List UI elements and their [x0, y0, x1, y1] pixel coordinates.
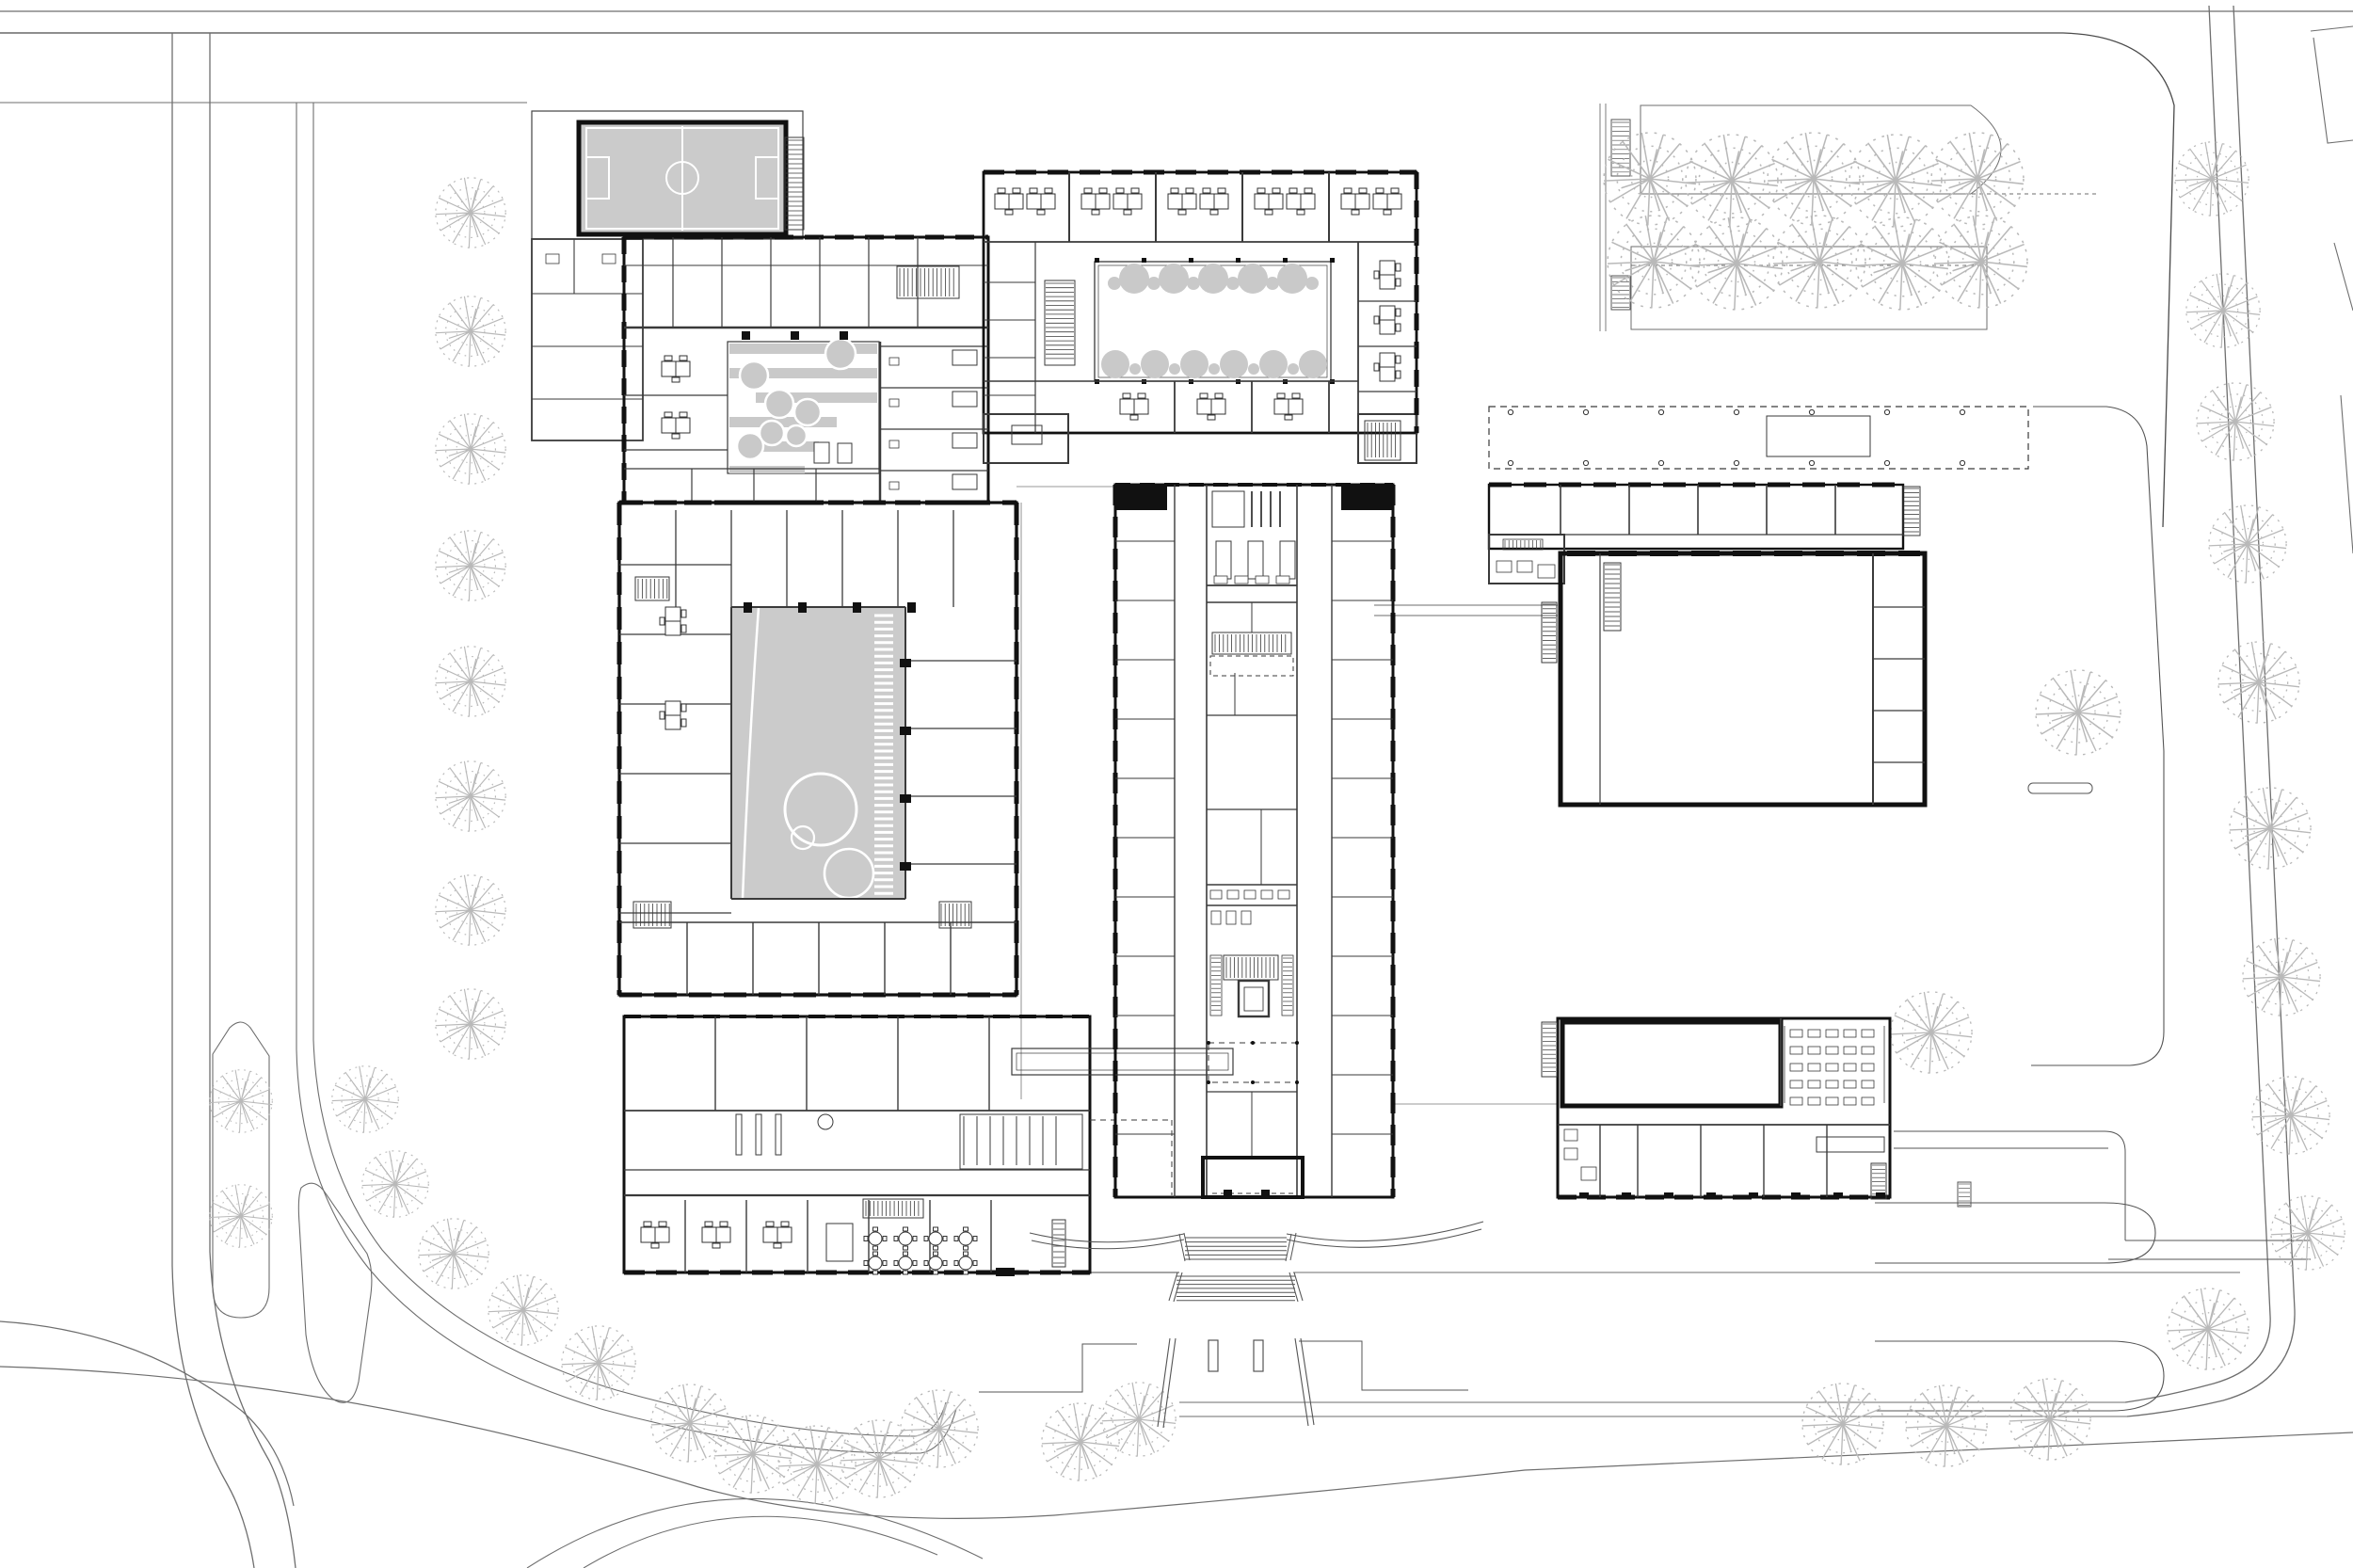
terrace-d-lower — [1875, 1341, 2164, 1411]
desk-symbol — [1081, 188, 1110, 215]
east-hall-building — [1542, 553, 1925, 805]
north-classroom-wing — [984, 172, 1417, 463]
tree-icon — [562, 1326, 635, 1400]
tree-icon — [1906, 1385, 1987, 1466]
door-post — [1261, 1190, 1270, 1196]
tree-icon — [1802, 1384, 1883, 1464]
library-counter — [1212, 491, 1244, 527]
wall-pier — [840, 331, 848, 340]
cot — [952, 474, 977, 489]
wall-pier — [900, 862, 911, 871]
lecture-seat-row — [1790, 1030, 1802, 1037]
courtyard-tree-dot — [1266, 277, 1279, 290]
tree-icon — [1690, 217, 1783, 310]
lecture-seat-row — [1862, 1064, 1874, 1071]
courtyard-tree-dot — [1129, 363, 1141, 375]
column-marker — [1189, 258, 1193, 263]
locker — [1210, 890, 1222, 899]
wall-pier — [742, 331, 750, 340]
pergola-post — [1583, 409, 1588, 414]
shrub — [765, 390, 793, 418]
bench-slot — [2028, 783, 2092, 793]
tree-icon — [419, 1219, 488, 1288]
wall-pier — [1706, 1192, 1716, 1198]
desk-symbol — [660, 701, 686, 729]
fixture — [602, 254, 616, 264]
schoolyard-east-edge — [2031, 407, 2164, 1065]
crib — [889, 358, 899, 365]
courtyard-tree-dot — [1169, 363, 1180, 375]
roundabout-arc-outer — [527, 1498, 983, 1568]
desk-symbol — [995, 188, 1023, 215]
skylight-dot — [1251, 1041, 1255, 1045]
courtyard-tree-dot — [1238, 264, 1268, 294]
desk-symbol — [1373, 188, 1401, 215]
canopy-inner — [1016, 1053, 1228, 1070]
tree-icon — [1891, 992, 1972, 1073]
fixture — [1581, 1167, 1596, 1180]
elevator-cab — [1244, 987, 1263, 1011]
courtyard-tree-dot — [1147, 277, 1160, 290]
tree-icon — [2168, 1288, 2249, 1369]
column-marker — [1283, 258, 1288, 263]
lecture-seat-row — [1844, 1030, 1856, 1037]
landscape-trees — [210, 133, 2345, 1503]
street-east-outer — [2125, 6, 2270, 1402]
wall-pier — [900, 659, 911, 667]
crib — [889, 482, 899, 489]
desk-symbol — [702, 1222, 730, 1248]
void-dashed — [1210, 656, 1293, 676]
fixture — [1538, 565, 1555, 578]
wall-pier — [853, 602, 861, 613]
skylight-dot — [1207, 1080, 1210, 1084]
lecture-seat-row — [1844, 1097, 1856, 1105]
wc — [1564, 1129, 1577, 1141]
lecture-seat-row — [1808, 1097, 1820, 1105]
reading-table — [1216, 541, 1231, 579]
lower-stair-cheek — [1174, 1272, 1182, 1302]
annex-sw — [984, 414, 1068, 463]
pergola-post — [1508, 409, 1513, 414]
splayed-wall — [1163, 1338, 1176, 1428]
lecture-seat-row — [1808, 1064, 1820, 1071]
wall-pier — [907, 602, 916, 613]
tree-icon — [436, 989, 505, 1059]
east-classroom-bar — [1489, 407, 2028, 584]
shrub — [740, 361, 768, 390]
tree-icon — [210, 1185, 273, 1248]
tree-icon — [1608, 216, 1700, 308]
desk-symbol — [1374, 261, 1401, 289]
lecture-seat-row — [1790, 1064, 1802, 1071]
lecture-seat-row — [1844, 1047, 1856, 1054]
desk-symbol — [1255, 188, 1283, 215]
wall-pier — [1833, 1192, 1843, 1198]
crib — [889, 440, 899, 448]
main-school-block — [619, 503, 1016, 995]
wall-pier — [1791, 1192, 1801, 1198]
lecture-seat-row — [1826, 1097, 1838, 1105]
plan-layers — [0, 6, 2353, 1568]
wide-stair — [1212, 632, 1291, 654]
lecture-seat-row — [1826, 1047, 1838, 1054]
corner-core — [1115, 485, 1167, 510]
serving-counter — [1052, 1220, 1065, 1267]
desk-symbol — [1341, 188, 1369, 215]
courtyard-tree-dot — [1159, 264, 1189, 294]
lecture-seat-row — [1844, 1080, 1856, 1088]
tree-icon — [436, 414, 505, 484]
wall-pier — [900, 794, 911, 803]
courtyard-tree-dot — [1119, 264, 1149, 294]
upper-stair-cheek — [1179, 1234, 1185, 1261]
round-table-symbol — [894, 1227, 917, 1250]
wall-pier — [900, 727, 911, 735]
wc-stall — [1241, 911, 1251, 924]
sandbox — [838, 443, 852, 463]
pergola-post — [1508, 460, 1513, 465]
canopy — [1012, 1048, 1233, 1075]
shelving — [756, 1114, 761, 1155]
tree-icon — [488, 1275, 558, 1345]
shelving — [736, 1114, 742, 1155]
desk-symbol — [641, 1222, 669, 1248]
corner-core — [1341, 485, 1393, 510]
locker — [1278, 890, 1289, 899]
south-east-building — [1542, 1018, 1890, 1199]
parcel-line-e1 — [2334, 243, 2353, 311]
terrace-d-upper — [1875, 1203, 2155, 1263]
cot — [952, 433, 977, 448]
side-stair-east — [1282, 955, 1293, 1016]
bar-outline — [1489, 485, 1903, 549]
lecture-seat-row — [1826, 1080, 1838, 1088]
wall-pier — [1664, 1192, 1673, 1198]
desk-symbol — [1200, 188, 1228, 215]
curved-wing-wall — [1287, 1222, 1483, 1241]
courtyard-tree-dot — [1180, 350, 1209, 378]
counter-unit — [1256, 576, 1269, 584]
lecture-seat-row — [1808, 1080, 1820, 1088]
wall-pier — [1749, 1192, 1758, 1198]
street-west-outer — [172, 33, 254, 1568]
tree-icon — [1935, 216, 2027, 308]
central-slab-building — [1115, 485, 1393, 1197]
wc — [1517, 561, 1532, 572]
gym-hall — [1562, 1022, 1781, 1106]
desk-symbol — [1113, 188, 1142, 215]
courtyard-tree-dot — [1299, 350, 1327, 378]
wc-stall — [1211, 911, 1221, 924]
courtyard-tree-dot — [1305, 277, 1319, 290]
locker — [1244, 890, 1256, 899]
desk-symbol — [1274, 393, 1303, 420]
floor-plan — [0, 0, 2353, 1568]
fixture — [546, 254, 559, 264]
pergola-post — [1734, 409, 1738, 414]
wall-pier — [1876, 1192, 1885, 1198]
lower-stair-cheek — [1289, 1272, 1298, 1302]
entrance-plaza — [979, 1222, 1483, 1428]
lower-stair-cheek — [1294, 1272, 1303, 1301]
tree-icon — [332, 1066, 398, 1132]
tree-icon — [436, 761, 505, 831]
desk-symbol — [1374, 306, 1401, 334]
tree-icon — [1931, 133, 2024, 225]
tree-icon — [436, 647, 505, 716]
desk-symbol — [662, 412, 690, 439]
wall-pier — [744, 602, 752, 613]
door-post — [1224, 1190, 1232, 1196]
splayed-wall — [1158, 1338, 1170, 1427]
shrub — [786, 425, 807, 446]
tree-icon — [2252, 1077, 2329, 1154]
reading-table — [1280, 541, 1295, 579]
skylight-dot — [1251, 1080, 1255, 1084]
skylight-dot — [1207, 1041, 1210, 1045]
courtyard-tree-dot — [1141, 350, 1169, 378]
pergola-post — [1809, 409, 1814, 414]
stair-se — [939, 902, 971, 928]
courtyard-tree-dot — [1209, 363, 1220, 375]
lower-stair-cheek — [1169, 1272, 1177, 1301]
kerb-top — [0, 33, 2174, 527]
round-table-symbol — [924, 1227, 947, 1250]
locker — [1227, 890, 1239, 899]
wc-stall — [1226, 911, 1236, 924]
kitchen-border — [960, 1114, 1082, 1169]
shrub — [825, 339, 856, 369]
lecture-seat-row — [1862, 1030, 1874, 1037]
exterior-stair — [1542, 1022, 1557, 1077]
desk-symbol — [1168, 188, 1196, 215]
kindergarten-block — [624, 237, 988, 503]
courtyard-tree-dot — [1248, 363, 1259, 375]
tree-icon — [2036, 670, 2121, 755]
street-east-inner — [2127, 6, 2295, 1416]
column-marker — [1330, 258, 1335, 263]
small-round-table — [818, 1114, 833, 1129]
planting-strip-lower — [1631, 247, 1987, 329]
plateau-edge-east — [1299, 1341, 1468, 1390]
slab-outline — [1115, 485, 1393, 1197]
lecture-seat-row — [1826, 1030, 1838, 1037]
lecture-seat-row — [1826, 1064, 1838, 1071]
wc — [1564, 1148, 1577, 1160]
pergola-post — [1583, 460, 1588, 465]
curved-wing-wall — [1032, 1240, 1184, 1249]
reading-table — [1248, 541, 1263, 579]
roundabout-arc-inner — [584, 1516, 937, 1568]
tree-icon — [2175, 142, 2249, 216]
cot — [952, 350, 977, 365]
hall-outline — [1561, 553, 1925, 805]
hall-stair — [1604, 563, 1621, 631]
annex — [1489, 535, 1564, 584]
courtyard-tree-dot — [1220, 350, 1248, 378]
street-west-inner — [210, 33, 296, 1568]
tree-icon — [2218, 642, 2299, 723]
courtyard-tree-dot — [1187, 277, 1200, 290]
tree-icon — [651, 1384, 728, 1462]
tree-icon — [1773, 216, 1865, 308]
lecture-seat-row — [1790, 1097, 1802, 1105]
pergola-post — [1809, 460, 1814, 465]
upper-stair-cheek — [1290, 1233, 1296, 1260]
main-entrance-vestibule — [1203, 1158, 1303, 1197]
tree-icon — [436, 178, 505, 248]
round-table-symbol — [864, 1227, 887, 1250]
splayed-wall — [1301, 1338, 1314, 1425]
tree-icon — [2197, 383, 2274, 460]
lecture-seat-row — [1790, 1080, 1802, 1088]
skylight-dot — [1295, 1041, 1299, 1045]
plateau-edge-west — [979, 1344, 1137, 1392]
lecture-seat-row — [1808, 1030, 1820, 1037]
tree-icon — [778, 1426, 856, 1503]
sports-hall — [532, 111, 804, 440]
kerb-southwest — [0, 1321, 294, 1506]
pergola-post — [1884, 409, 1889, 414]
column-marker — [1236, 258, 1241, 263]
pergola-post — [1658, 409, 1663, 414]
lecture-seat-row — [1844, 1064, 1856, 1071]
wall-pier — [798, 602, 807, 613]
column-marker — [1095, 258, 1099, 263]
tree-icon — [436, 531, 505, 600]
ramp-line-1 — [1894, 1131, 2125, 1240]
parcel-line-ne — [2311, 26, 2353, 143]
traffic-island — [213, 1022, 269, 1318]
locker — [1261, 890, 1273, 899]
counter-unit — [1276, 576, 1289, 584]
wing-outline — [624, 1016, 1090, 1272]
side-stair-west — [1210, 955, 1222, 1016]
pergola-post — [1658, 460, 1663, 465]
shrub — [794, 399, 821, 425]
courtyard-tree-dot — [1101, 350, 1129, 378]
tree-icon — [2209, 505, 2286, 583]
tree-icon — [1604, 133, 1696, 225]
entry-pylon — [1209, 1340, 1218, 1371]
lecture-seat-row — [1862, 1080, 1874, 1088]
tree-icon — [436, 296, 505, 366]
pergola-post — [1734, 460, 1738, 465]
courtyard-tree-dot — [1259, 350, 1288, 378]
tree-icon — [1042, 1403, 1119, 1480]
pergola-post — [1960, 409, 1964, 414]
desk-symbol — [1197, 393, 1225, 420]
courtyard-tree-dot — [1226, 277, 1240, 290]
meeting-table — [1012, 425, 1042, 444]
lecture-seat-row — [1862, 1047, 1874, 1054]
tree-icon — [1856, 217, 1948, 310]
desk-symbol — [662, 356, 690, 382]
skylight-dot — [1295, 1080, 1299, 1084]
desk-symbol — [1287, 188, 1315, 215]
curved-wing-wall — [1030, 1233, 1184, 1242]
shelving — [776, 1114, 781, 1155]
tree-icon — [901, 1390, 978, 1467]
site-plan-canvas — [0, 0, 2353, 1568]
road-south-sweep — [0, 1367, 2353, 1518]
south-office-wing — [624, 1016, 1233, 1274]
tree-icon — [1768, 133, 1860, 225]
courtyard-tree-dot — [1288, 363, 1299, 375]
tree-icon — [840, 1420, 918, 1497]
tree-icon — [2271, 1196, 2345, 1270]
splayed-wall — [1295, 1338, 1308, 1426]
wall-pier — [1622, 1192, 1631, 1198]
ramp-line-3 — [2108, 1240, 2311, 1259]
stair-east — [1903, 487, 1920, 536]
counter-unit — [1214, 576, 1227, 584]
desk-symbol — [660, 607, 686, 635]
tree-icon — [1849, 135, 1942, 227]
wall-pier — [791, 331, 799, 340]
pergola-planter — [1767, 416, 1870, 456]
parcel-line-e2 — [2341, 395, 2353, 553]
desk-symbol — [1027, 188, 1055, 215]
crib — [889, 399, 899, 407]
desk-symbol — [763, 1222, 792, 1248]
lecture-seat-row — [1790, 1047, 1802, 1054]
courtyard-tree-dot — [1277, 264, 1307, 294]
stair-nw — [635, 577, 669, 600]
sandbox — [814, 442, 829, 463]
wc — [1497, 561, 1512, 572]
pergola-dashed — [1489, 407, 2028, 469]
cot — [952, 392, 977, 407]
desk-symbol — [1374, 353, 1401, 381]
column-marker — [1142, 258, 1146, 263]
lecture-seat-row — [1808, 1047, 1820, 1054]
counter-unit — [1235, 576, 1248, 584]
entry-pylon — [1254, 1340, 1263, 1371]
shrub — [737, 433, 763, 459]
courtyard-tree-dot — [1108, 277, 1121, 290]
lecture-seat-row — [1862, 1097, 1874, 1105]
tree-icon — [1686, 135, 1778, 227]
conference-table — [826, 1224, 853, 1261]
tree-icon — [362, 1151, 428, 1217]
tree-icon — [210, 1070, 273, 1133]
pergola-post — [1884, 460, 1889, 465]
wall-pier — [1579, 1192, 1589, 1198]
desk-symbol — [1120, 393, 1148, 420]
courtyard-tree-dot — [1198, 264, 1228, 294]
planting-bar — [729, 466, 805, 473]
tree-icon — [436, 875, 505, 945]
round-table-symbol — [954, 1227, 977, 1250]
pergola-post — [1960, 460, 1964, 465]
